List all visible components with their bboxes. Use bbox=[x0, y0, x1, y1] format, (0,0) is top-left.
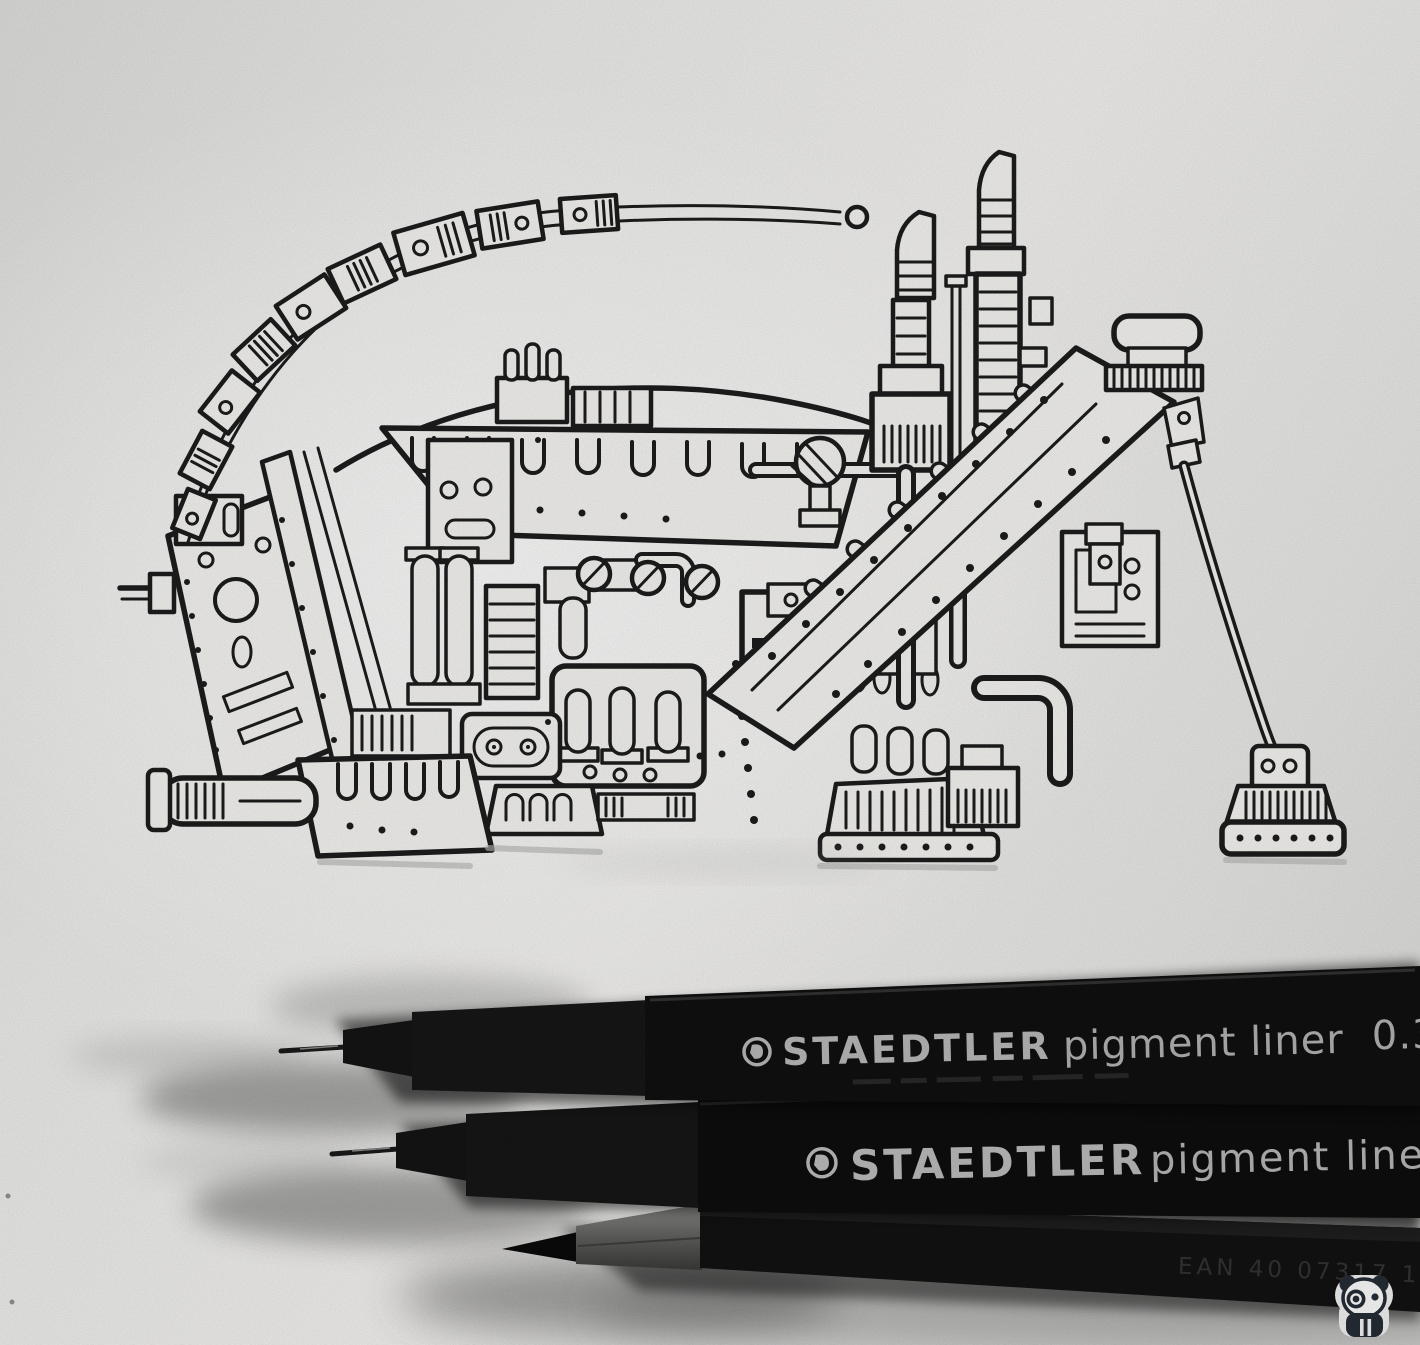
photo-canvas: EAN 40 07317 101 STAEDTLER pigment liner bbox=[0, 0, 1420, 1345]
photo-of-ink-doodle-and-pens: EAN 40 07317 101 STAEDTLER pigment liner bbox=[0, 0, 1420, 1345]
film-grain-overlay bbox=[0, 0, 1420, 1345]
